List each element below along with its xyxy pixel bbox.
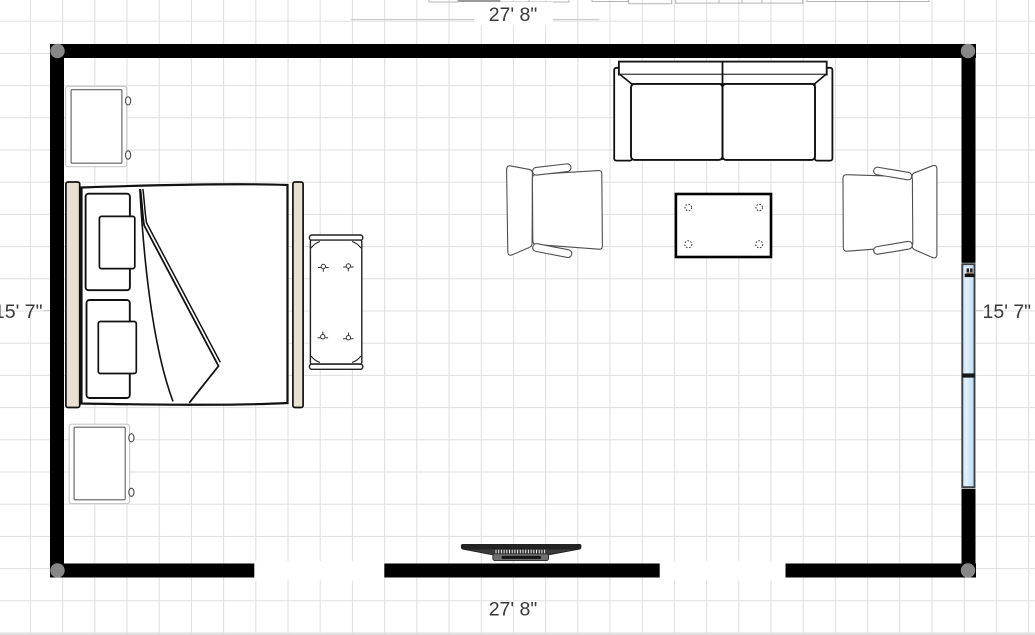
svg-text:27' 8": 27' 8" — [489, 599, 538, 621]
svg-text:27' 8": 27' 8" — [489, 4, 538, 26]
svg-text:15' 7": 15' 7" — [983, 301, 1032, 323]
svg-text:15' 7": 15' 7" — [0, 301, 43, 323]
